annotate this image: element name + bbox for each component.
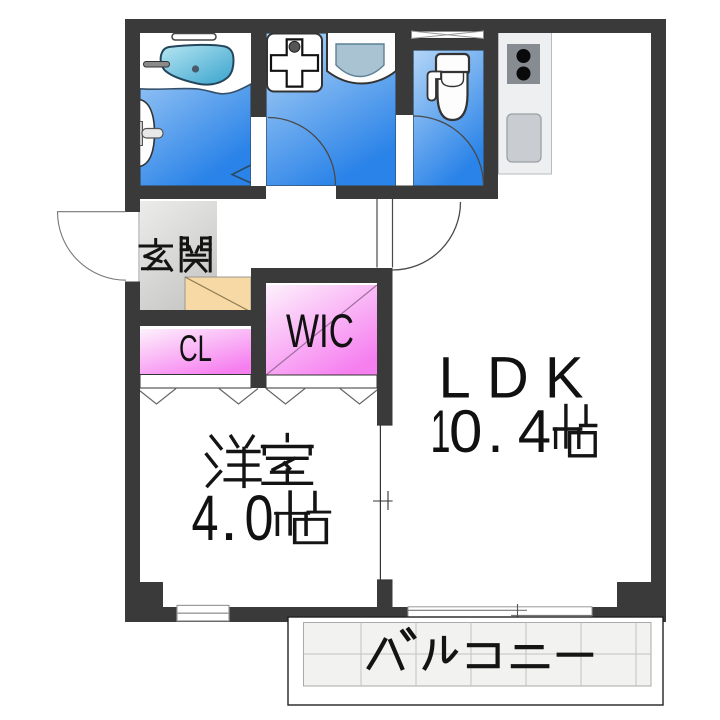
svg-text:CL: CL [179, 328, 212, 369]
svg-text:.: . [487, 398, 504, 465]
svg-text:4: 4 [518, 398, 551, 465]
svg-text:0: 0 [449, 398, 482, 465]
svg-text:.: . [220, 482, 238, 554]
svg-text:4: 4 [192, 482, 219, 554]
svg-text:0: 0 [245, 482, 274, 554]
svg-text:1: 1 [431, 398, 451, 465]
svg-text:WIC: WIC [286, 304, 354, 357]
